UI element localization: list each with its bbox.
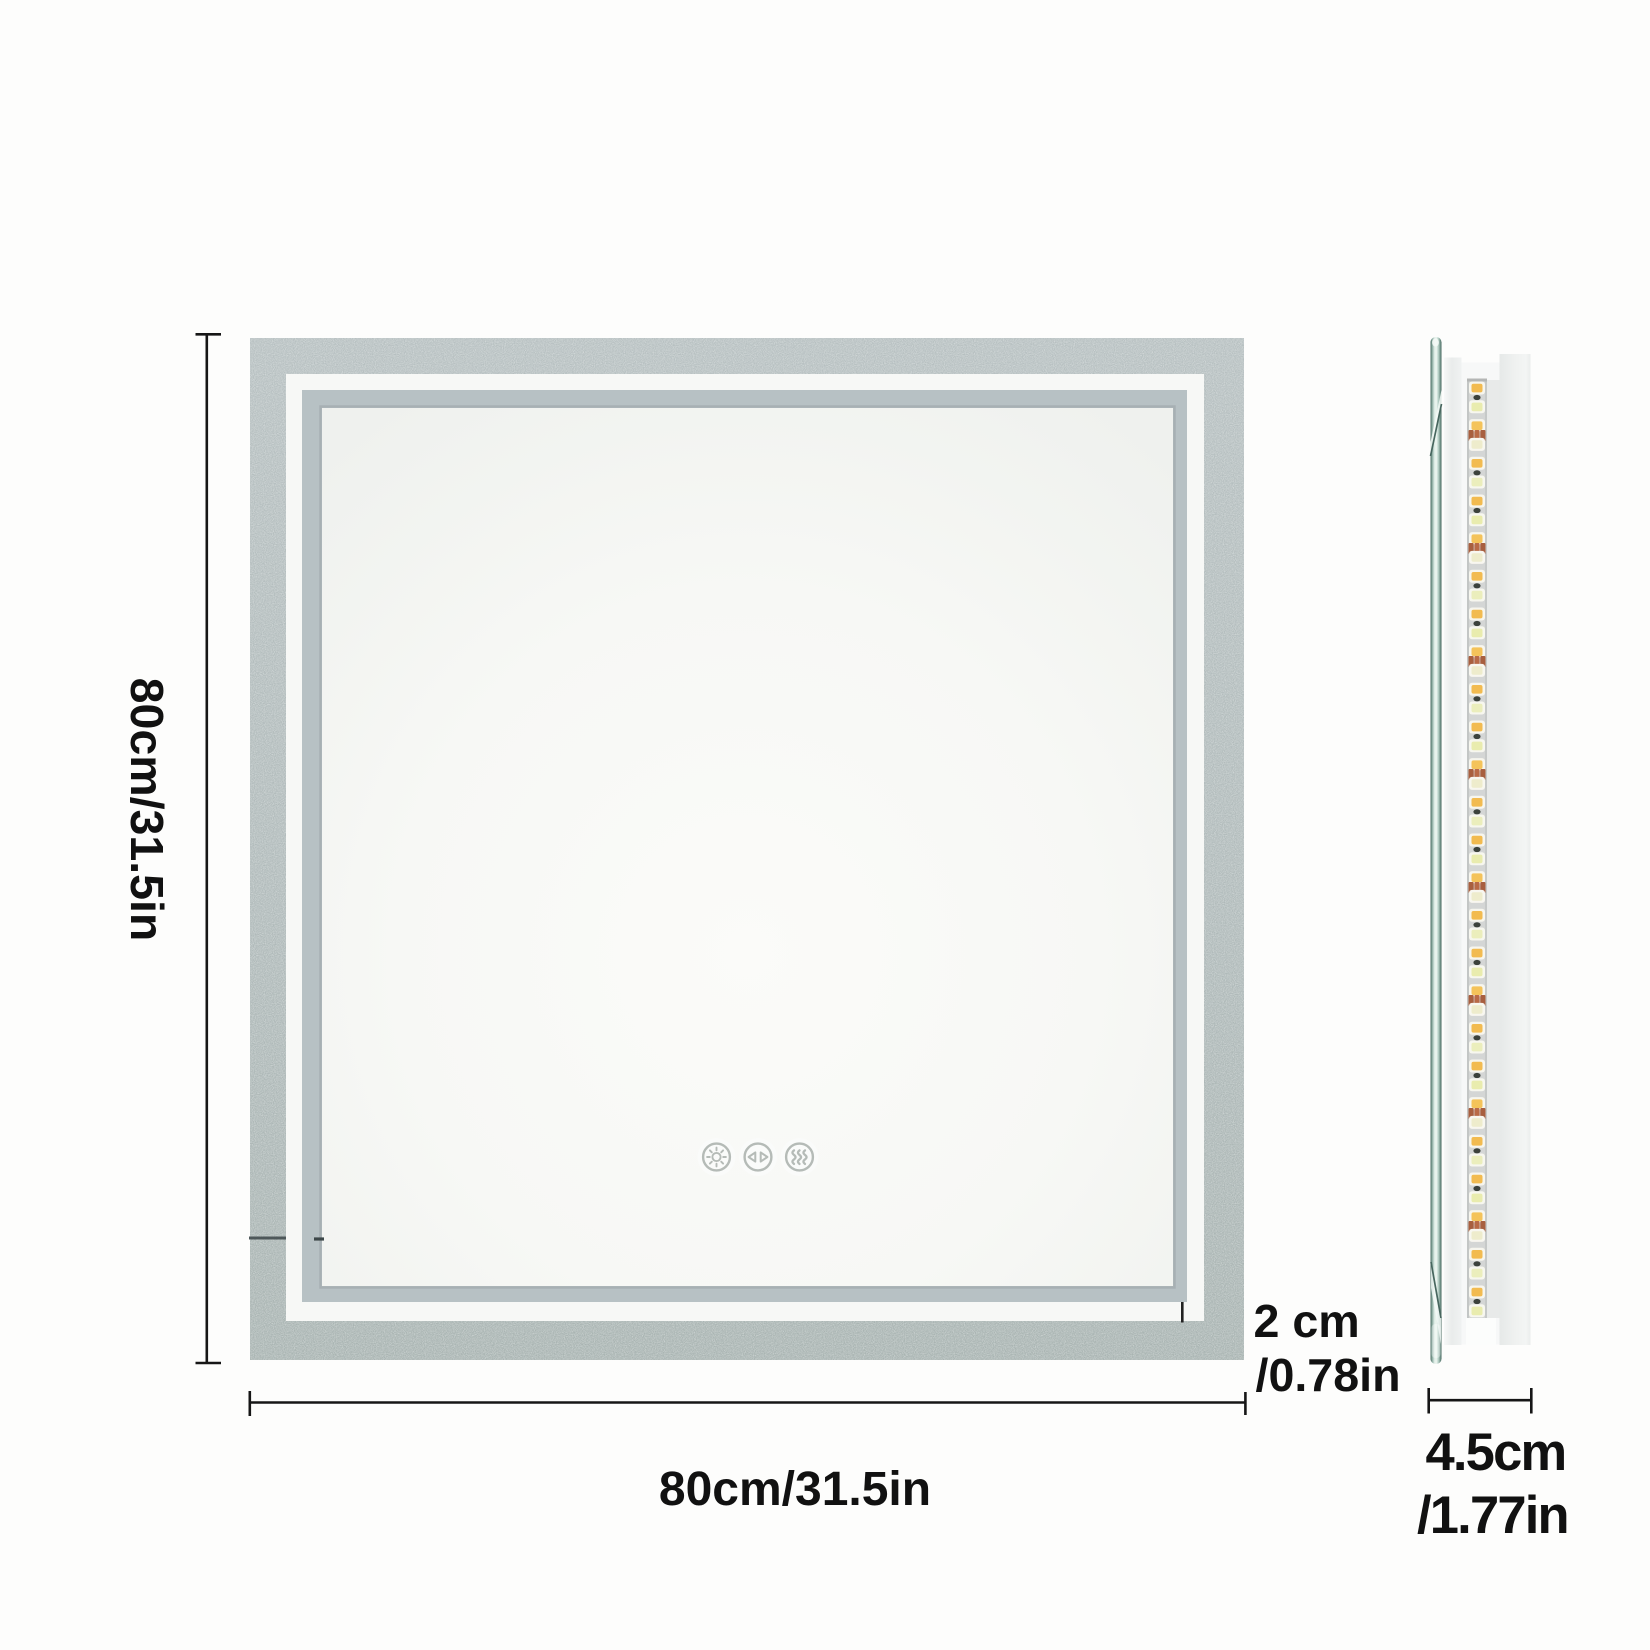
- svg-text:80cm/31.5in: 80cm/31.5in: [659, 1463, 931, 1516]
- svg-text:/0.78in: /0.78in: [1256, 1349, 1401, 1401]
- svg-text:/1.77in: /1.77in: [1417, 1486, 1568, 1545]
- svg-text:80cm/31.5in: 80cm/31.5in: [121, 678, 173, 942]
- svg-text:2 cm: 2 cm: [1254, 1295, 1360, 1347]
- svg-text:4.5cm: 4.5cm: [1426, 1423, 1566, 1482]
